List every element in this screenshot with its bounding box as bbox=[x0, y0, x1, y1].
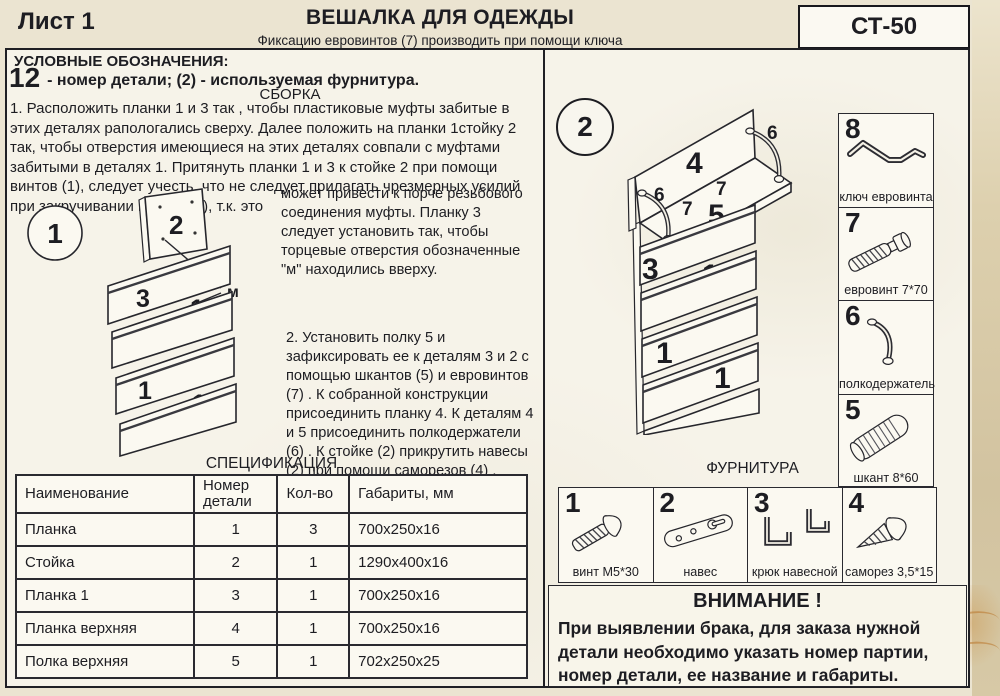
table-row: Стойка 2 1 1290x400x16 bbox=[16, 546, 527, 579]
col-header-dimensions: Габариты, мм bbox=[349, 475, 527, 513]
cell-name: Полка верхняя bbox=[16, 645, 194, 678]
cell-part-number: 1 bbox=[194, 513, 278, 546]
diagram-1-badge: 1 bbox=[47, 218, 63, 249]
table-row: Планка верхняя 4 1 700x250x16 bbox=[16, 612, 527, 645]
part-label: 2 bbox=[169, 210, 183, 240]
page-title: ВЕШАЛКА ДЛЯ ОДЕЖДЫ bbox=[230, 6, 650, 30]
cell-part-number: 3 bbox=[194, 579, 278, 612]
part-label: 4 bbox=[686, 147, 703, 180]
cell-dimensions: 702x250x25 bbox=[349, 645, 527, 678]
fitting-item-1: 1 винт М5*30 bbox=[559, 488, 654, 582]
cell-part-number: 5 bbox=[194, 645, 278, 678]
cell-dimensions: 700x250x16 bbox=[349, 579, 527, 612]
cell-dimensions: 700x250x16 bbox=[349, 612, 527, 645]
assembly-instruction-sheet: Лист 1 ВЕШАЛКА ДЛЯ ОДЕЖДЫ Фиксацию евров… bbox=[0, 0, 1000, 696]
cell-qty: 3 bbox=[277, 513, 349, 546]
hardware-label: полкодержатель bbox=[839, 378, 933, 392]
spec-table-title: СПЕЦИФИКАЦИЯ bbox=[15, 455, 528, 473]
cell-dimensions: 1290x400x16 bbox=[349, 546, 527, 579]
part-label: 7 bbox=[682, 199, 693, 220]
cell-dimensions: 700x250x16 bbox=[349, 513, 527, 546]
model-code-box: СТ-50 bbox=[798, 5, 970, 49]
cell-name: Планка верхняя bbox=[16, 612, 194, 645]
panel-divider bbox=[543, 48, 545, 688]
cell-part-number: 2 bbox=[194, 546, 278, 579]
cell-qty: 1 bbox=[277, 612, 349, 645]
wall-hook-icon bbox=[751, 501, 839, 557]
instruction-step-1-continued: может привести к порче резьбового соедин… bbox=[281, 185, 529, 280]
legend-part-number-sample: 12 bbox=[9, 64, 40, 92]
cell-name: Планка 1 bbox=[16, 579, 194, 612]
assembly-diagram-2: 4 5 7 7 6 6 3 1 bbox=[598, 95, 848, 435]
part-label: 3 bbox=[642, 253, 659, 286]
col-header-name: Наименование bbox=[16, 475, 194, 513]
table-row: Полка верхняя 5 1 702x250x25 bbox=[16, 645, 527, 678]
fitting-item-4: 4 саморез 3,5*15 bbox=[843, 488, 937, 582]
cell-qty: 1 bbox=[277, 579, 349, 612]
warning-box: ВНИМАНИЕ ! При выявлении брака, для зака… bbox=[548, 585, 967, 687]
fitting-label: крюк навесной bbox=[748, 566, 842, 580]
hardware-item-8: 8 ключ евровинта bbox=[839, 114, 933, 208]
fittings-row: 1 винт М5*30 2 bbox=[558, 487, 937, 583]
hardware-label: евровинт 7*70 bbox=[839, 284, 933, 298]
board-part-2: 2 bbox=[139, 189, 207, 262]
dowel-icon bbox=[842, 408, 930, 464]
col-header-part-number: Номер детали bbox=[194, 475, 278, 513]
part-label: 1 bbox=[138, 377, 152, 405]
sheet-number: Лист 1 bbox=[18, 8, 95, 36]
cell-name: Планка bbox=[16, 513, 194, 546]
hex-key-icon bbox=[842, 127, 930, 177]
fittings-title: ФУРНИТУРА bbox=[640, 460, 865, 478]
hanging-plate-icon bbox=[657, 501, 745, 557]
fitting-item-3: 3 крюк навесной bbox=[748, 488, 843, 582]
part-label: 6 bbox=[654, 185, 665, 206]
warning-text: При выявлении брака, для заказа нужной д… bbox=[558, 617, 960, 688]
table-row: Планка 1 3 700x250x16 bbox=[16, 513, 527, 546]
cell-qty: 1 bbox=[277, 546, 349, 579]
machine-screw-icon bbox=[562, 501, 650, 557]
table-row: Планка 1 3 1 700x250x16 bbox=[16, 579, 527, 612]
assembly-diagram-1: 1 2 м 3 1 1 1 bbox=[8, 183, 288, 457]
scan-margin bbox=[972, 0, 1000, 696]
part-label: 1 bbox=[656, 337, 673, 370]
cell-name: Стойка bbox=[16, 546, 194, 579]
warning-title: ВНИМАНИЕ ! bbox=[549, 590, 966, 613]
table-header-row: Наименование Номер детали Кол-во Габарит… bbox=[16, 475, 527, 513]
part-label: 3 bbox=[136, 285, 150, 313]
hardware-label: ключ евровинта bbox=[839, 191, 933, 205]
hardware-column: 8 ключ евровинта 7 bbox=[838, 113, 934, 487]
fitting-label: навес bbox=[654, 566, 748, 580]
shelf-support-icon bbox=[842, 314, 930, 368]
cell-part-number: 4 bbox=[194, 612, 278, 645]
hardware-item-7: 7 евровинт 7*70 bbox=[839, 208, 933, 302]
cell-qty: 1 bbox=[277, 645, 349, 678]
confirmat-screw-icon bbox=[842, 221, 930, 277]
self-tapping-screw-icon bbox=[846, 501, 934, 557]
part-label: 6 bbox=[767, 123, 778, 144]
part-label: 1 bbox=[714, 362, 731, 395]
col-header-qty: Кол-во bbox=[277, 475, 349, 513]
spec-table: Наименование Номер детали Кол-во Габарит… bbox=[15, 474, 528, 679]
part-label: 7 bbox=[716, 179, 727, 200]
hardware-item-6: 6 полкодержатель bbox=[839, 301, 933, 395]
fitting-label: винт М5*30 bbox=[559, 566, 653, 580]
fitting-item-2: 2 навес bbox=[654, 488, 749, 582]
fitting-label: саморез 3,5*15 bbox=[843, 566, 937, 580]
